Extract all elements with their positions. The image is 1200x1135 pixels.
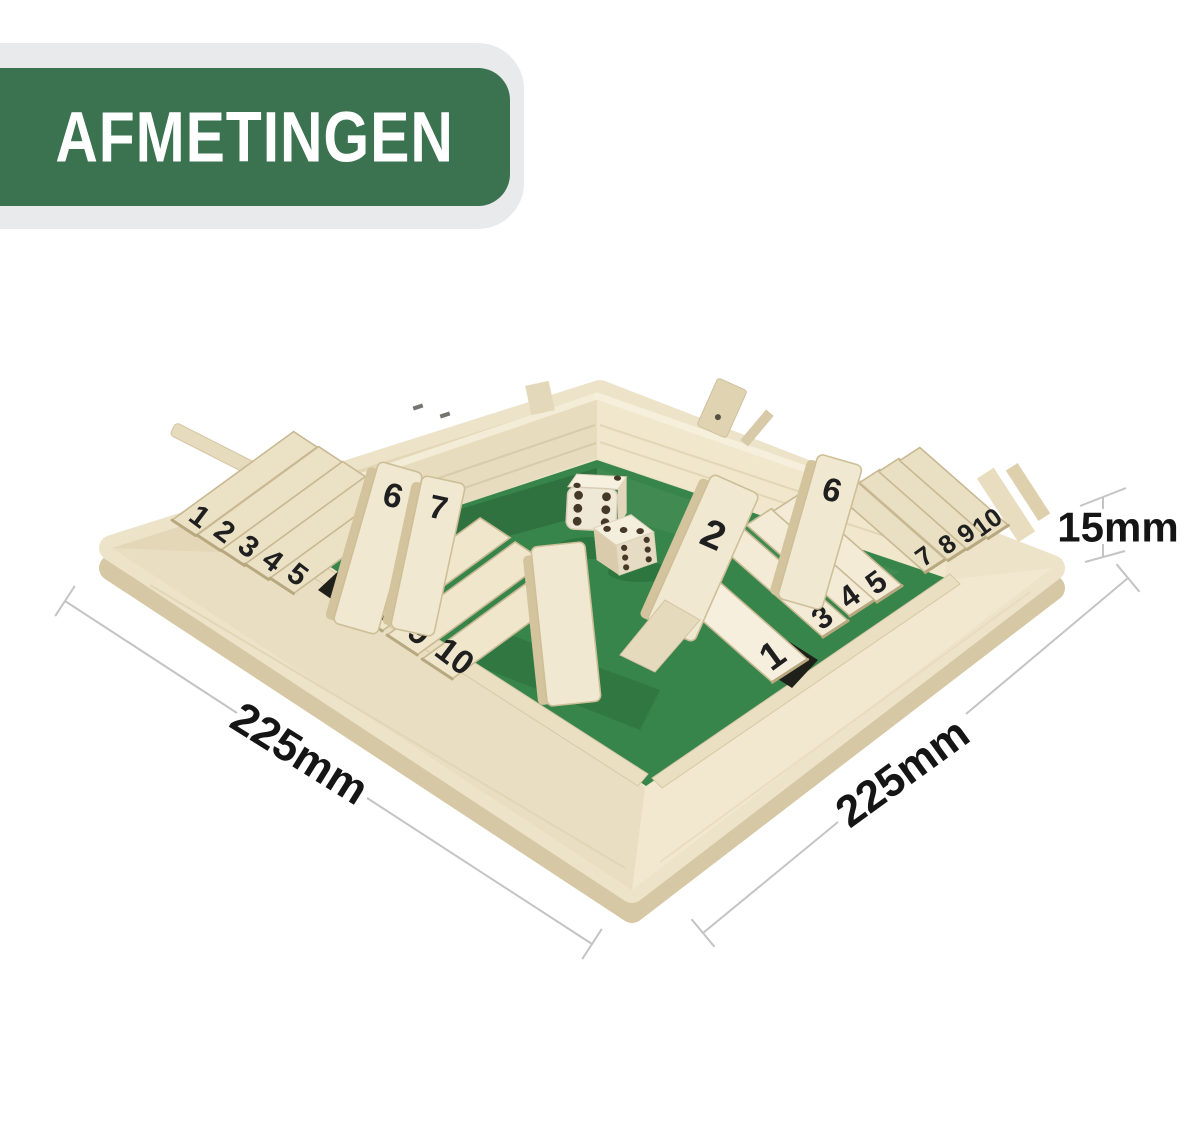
- product-dimensions-figure: 1234589107891034516726 225mm 225mm 15mm: [0, 0, 1200, 1135]
- dim-tick: [692, 919, 715, 947]
- back-row-tiles-hint: [413, 404, 424, 411]
- dim-tick: [1117, 564, 1140, 592]
- page-background: AFMETINGEN: [0, 0, 1200, 1135]
- dimension-height: 15mm: [1057, 488, 1178, 562]
- dim-tick: [1085, 551, 1125, 562]
- dim-tick: [55, 586, 75, 616]
- dim-tick: [582, 929, 602, 959]
- back-row-tiles-hint: [440, 412, 451, 419]
- dimension-label-height: 15mm: [1057, 504, 1178, 551]
